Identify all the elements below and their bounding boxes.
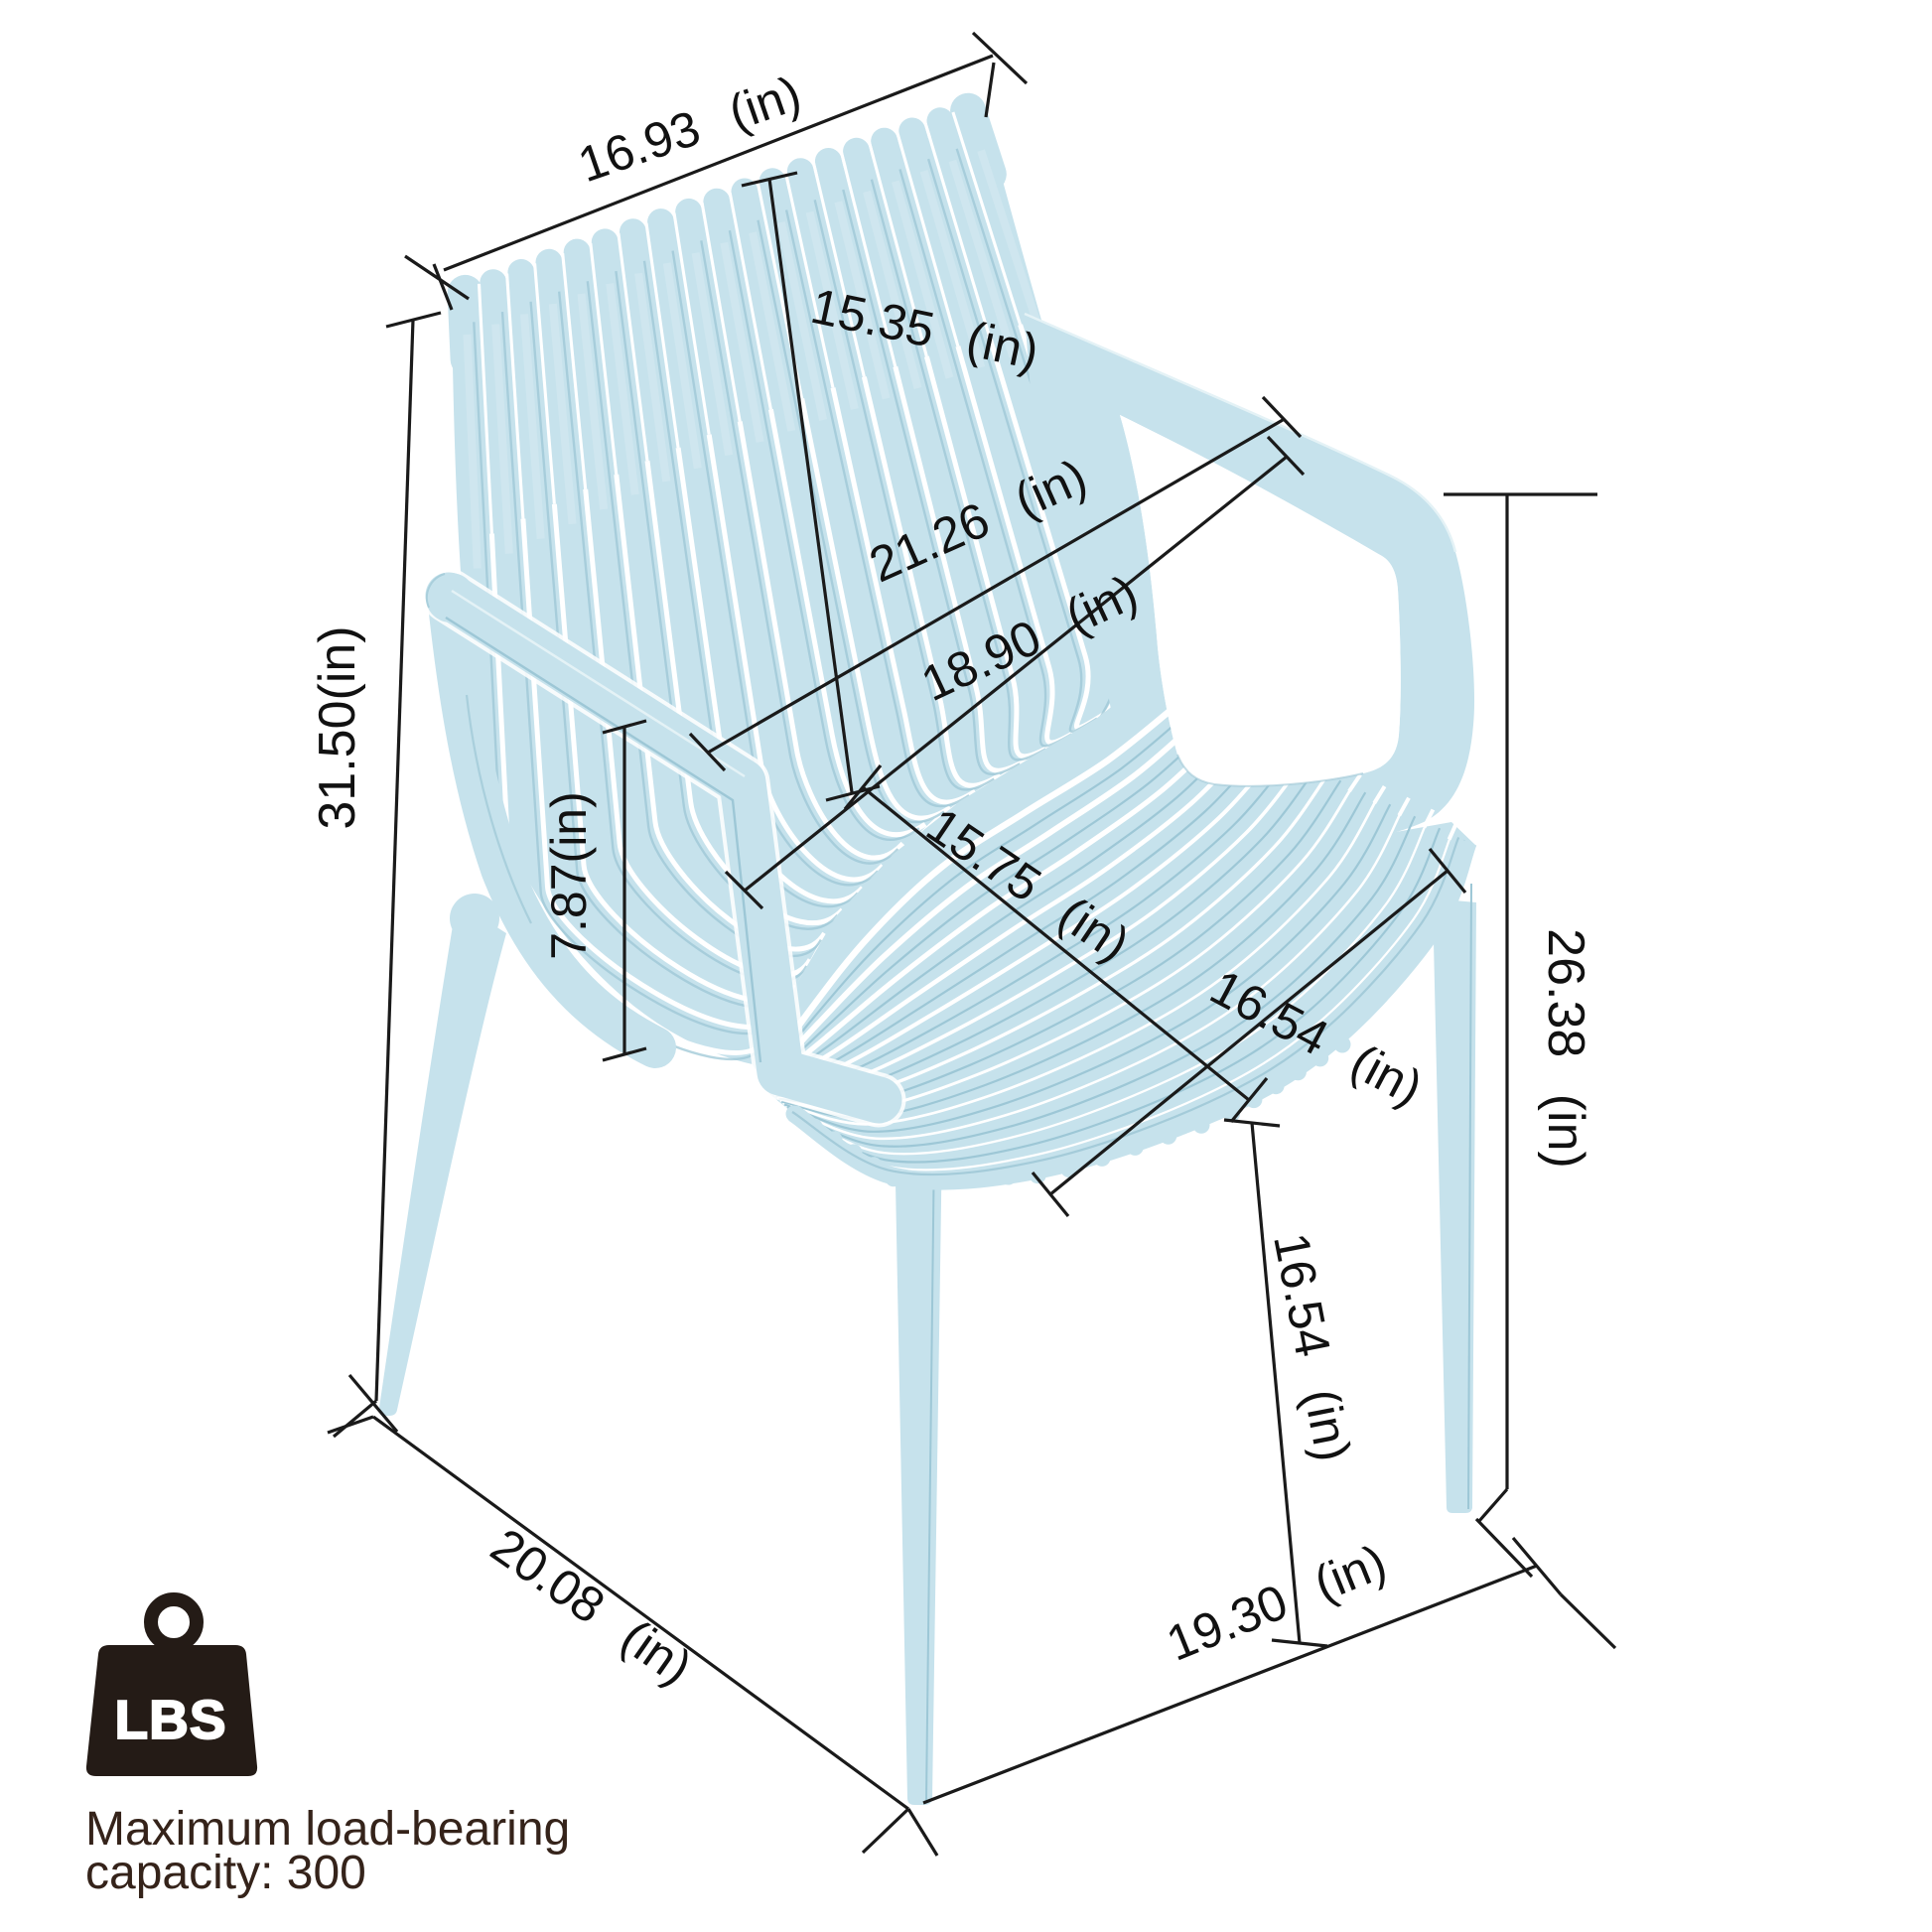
svg-text:LBS: LBS <box>115 1689 227 1750</box>
svg-text:7.87(in): 7.87(in) <box>541 791 597 960</box>
svg-text:capacity: 300: capacity: 300 <box>85 1847 366 1899</box>
svg-text:31.50(in): 31.50(in) <box>309 625 366 829</box>
svg-text:26.38 (in): 26.38 (in) <box>1537 928 1594 1169</box>
